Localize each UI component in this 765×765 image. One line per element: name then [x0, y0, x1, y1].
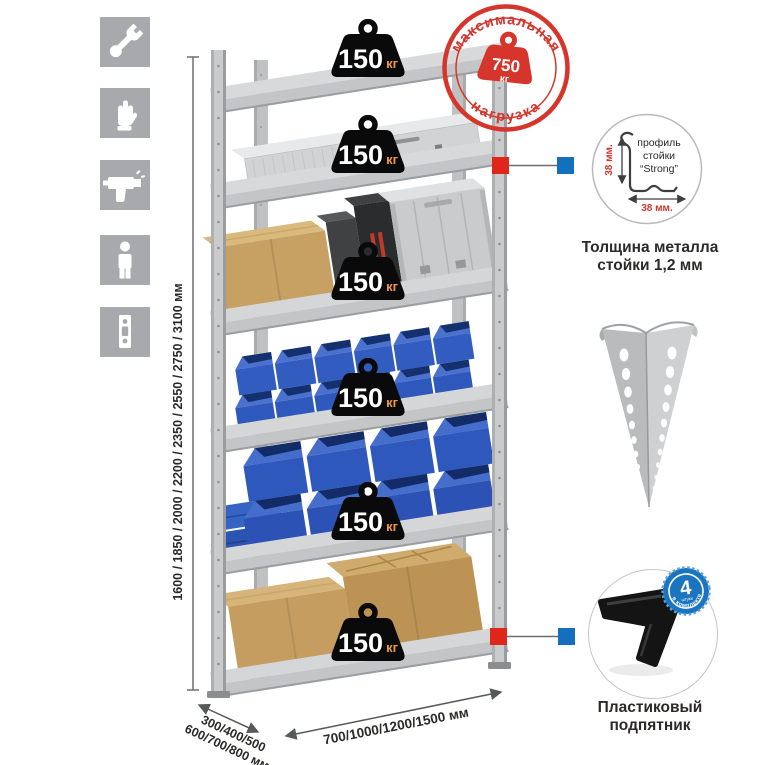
height-dimension-label: 1600 / 1850 / 2000 / 2200 / 2350 / 2550 …: [171, 283, 185, 600]
weight-badge-3: 150кг: [318, 242, 418, 307]
weight-badge-4: 150кг: [318, 358, 418, 423]
kit-badge: 4 штуки в комплекте: [661, 566, 711, 621]
weight-badge-5: 150кг: [318, 482, 418, 547]
svg-text:“Strong”: “Strong”: [640, 163, 678, 175]
max-load-stamp: максимальная нагрузка 750 кг: [440, 2, 572, 139]
weight-badge-2: 150кг: [318, 115, 418, 180]
foot-caption: Пластиковый подпятник: [565, 699, 735, 735]
angle-post-image: [596, 315, 700, 520]
callout-red-square-top: [492, 157, 509, 174]
profile-caption: Толщина металла стойки 1,2 мм: [565, 239, 735, 275]
callout-red-square-bottom: [490, 628, 507, 645]
svg-text:38 мм.: 38 мм.: [641, 203, 673, 214]
callout-connector-top: [492, 157, 574, 174]
svg-text:стойки: стойки: [643, 150, 675, 162]
callout-blue-square-top: [557, 157, 574, 174]
weight-badge-6: 150кг: [318, 603, 418, 668]
height-dimension-line: [187, 57, 199, 690]
svg-text:кг: кг: [499, 73, 509, 85]
product-infographic: 150кг 150кг 150кг 150кг 150кг: [0, 0, 765, 765]
callout-blue-square-bottom: [558, 628, 575, 645]
stamp-weight-icon: 750 кг: [477, 31, 537, 87]
callout-connector-bottom: [490, 628, 575, 645]
svg-text:38 мм.: 38 мм.: [604, 144, 615, 176]
weight-badge-1: 150кг: [318, 19, 418, 84]
profile-detail: 38 мм. 38 мм. профиль стойки “Strong”: [591, 113, 703, 230]
svg-text:профиль: профиль: [637, 137, 681, 149]
